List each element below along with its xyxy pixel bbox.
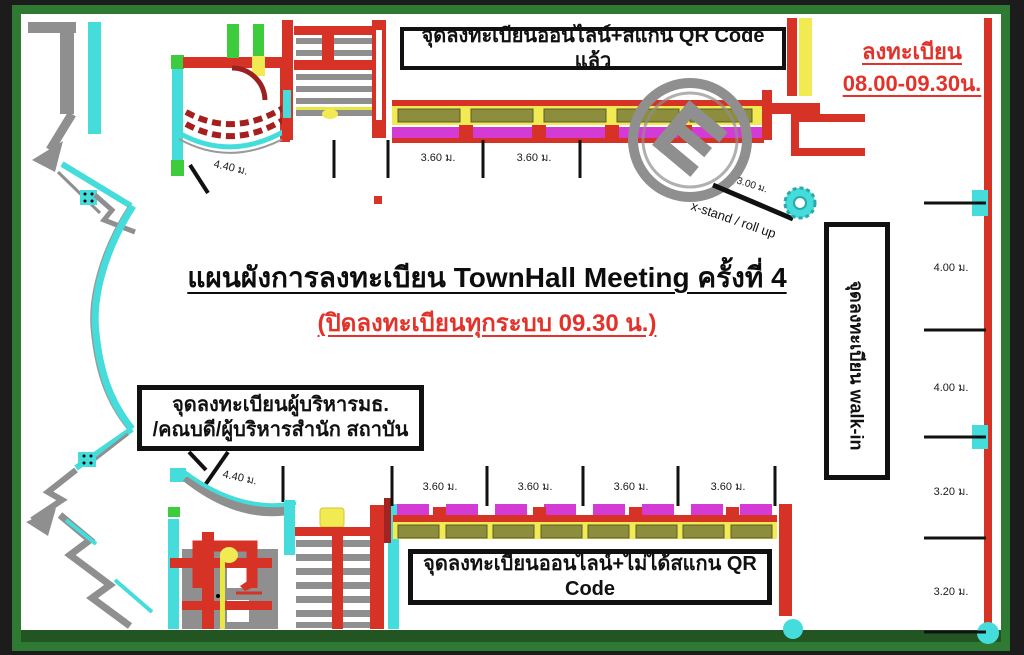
dim-top-row-1: 3.60 ม. <box>392 148 484 166</box>
callout-executives-line1: จุดลงทะเบียนผู้บริหารมธ. <box>172 393 389 418</box>
dim-bottom-row-1: 3.60 ม. <box>394 477 486 495</box>
rollup-stand-icon-2 <box>783 619 803 639</box>
dim-right-4: 3.20 ม. <box>912 582 990 600</box>
callout-online-not-scanned-label: จุดลงทะเบียนออนไลน์+ไม่ได้สแกน QR Code <box>413 552 767 602</box>
floor-plan-canvas: จุดลงทะเบียนออนไลน์+สแกน QR Code แล้ว จุ… <box>0 0 1024 655</box>
dim-right-2: 4.00 ม. <box>912 378 990 396</box>
dim-bottom-row-3: 3.60 ม. <box>585 477 677 495</box>
dim-bottom-row-4: 3.60 ม. <box>682 477 774 495</box>
dim-right-1: 4.00 ม. <box>912 258 990 276</box>
page-title: แผนผังการลงทะเบียน TownHall Meeting ครั้… <box>147 256 827 300</box>
callout-executives: จุดลงทะเบียนผู้บริหารมธ. /คณบดี/ผู้บริหา… <box>137 385 424 451</box>
dim-top-row-2: 3.60 ม. <box>488 148 580 166</box>
page-subtitle: (ปิดลงทะเบียนทุกระบบ 09.30 น.) <box>147 303 827 342</box>
callout-online-scanned: จุดลงทะเบียนออนไลน์+สแกน QR Code แล้ว <box>400 27 786 70</box>
callout-online-not-scanned: จุดลงทะเบียนออนไลน์+ไม่ได้สแกน QR Code <box>408 549 772 605</box>
registration-time-line2: 08.00-09.30น. <box>812 68 1012 100</box>
callout-online-scanned-label: จุดลงทะเบียนออนไลน์+สแกน QR Code แล้ว <box>404 24 782 74</box>
dim-right-3: 3.20 ม. <box>912 482 990 500</box>
registration-time-line1: ลงทะเบียน <box>812 36 1012 68</box>
callout-executives-line2: /คณบดี/ผู้บริหารสำนัก สถาบัน <box>153 418 409 443</box>
registration-time-note: ลงทะเบียน 08.00-09.30น. <box>812 36 1012 100</box>
callout-walkin-label: จุดลงทะเบียน walk-in <box>843 246 872 486</box>
dim-bottom-row-2: 3.60 ม. <box>489 477 581 495</box>
rollup-stand-icon <box>785 188 815 218</box>
